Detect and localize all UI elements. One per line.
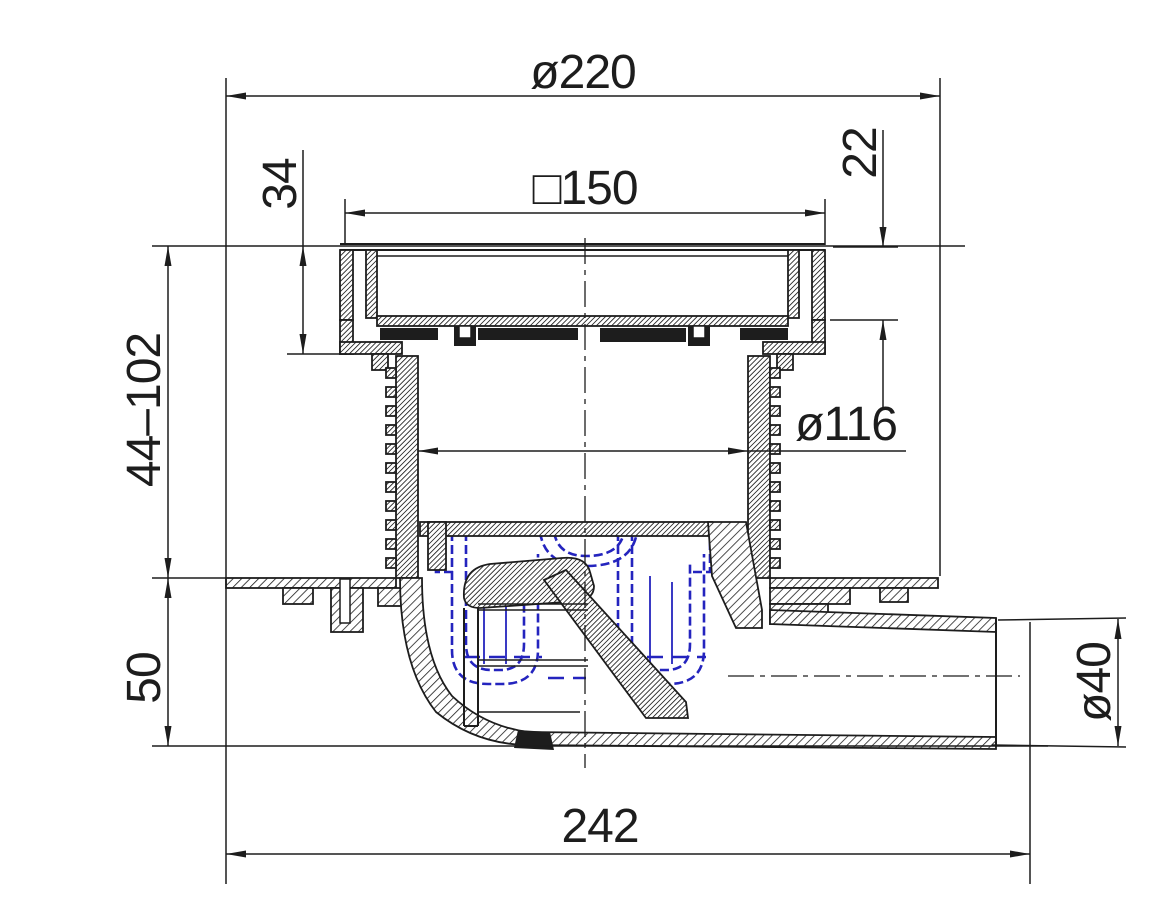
trap-flap-mechanism: [464, 558, 688, 726]
bowl-rim: [420, 522, 712, 536]
dimension-frame-height: 34: [254, 150, 347, 354]
thread-teeth-left: [386, 368, 396, 568]
dimension-adjustable-height: 44–102: [118, 246, 226, 578]
outlet-pipe-top: [770, 610, 996, 632]
dim-label-frame-edge-height: 22: [834, 127, 887, 178]
technical-drawing: ø220 □150 22 34 44–102 50: [40, 16, 1170, 894]
drawing-canvas: ø220 □150 22 34 44–102 50: [40, 16, 1170, 894]
screw-slot: [340, 579, 350, 623]
dim-label-top-diameter: ø220: [530, 46, 635, 99]
dim-label-grate-square: □150: [532, 162, 637, 215]
dim-label-trap-body-height: 50: [118, 652, 171, 703]
dim-label-adjustable-height: 44–102: [118, 333, 171, 487]
dim-label-overall-width: 242: [561, 800, 638, 853]
dimension-grate-square: □150: [345, 162, 825, 245]
grate-frame: [340, 244, 825, 370]
dimension-frame-edge-height: 22: [830, 127, 898, 408]
grate-plate: [377, 316, 788, 326]
dim-label-riser-inner-diameter: ø116: [795, 398, 897, 451]
dim-label-outlet-diameter: ø40: [1068, 642, 1121, 722]
dimension-outlet-diameter: ø40: [992, 618, 1126, 747]
dim-label-frame-height: 34: [254, 158, 307, 210]
dimension-riser-inner-diameter: ø116: [418, 398, 906, 455]
thread-teeth-right: [770, 368, 780, 568]
drain-body: [400, 522, 996, 750]
